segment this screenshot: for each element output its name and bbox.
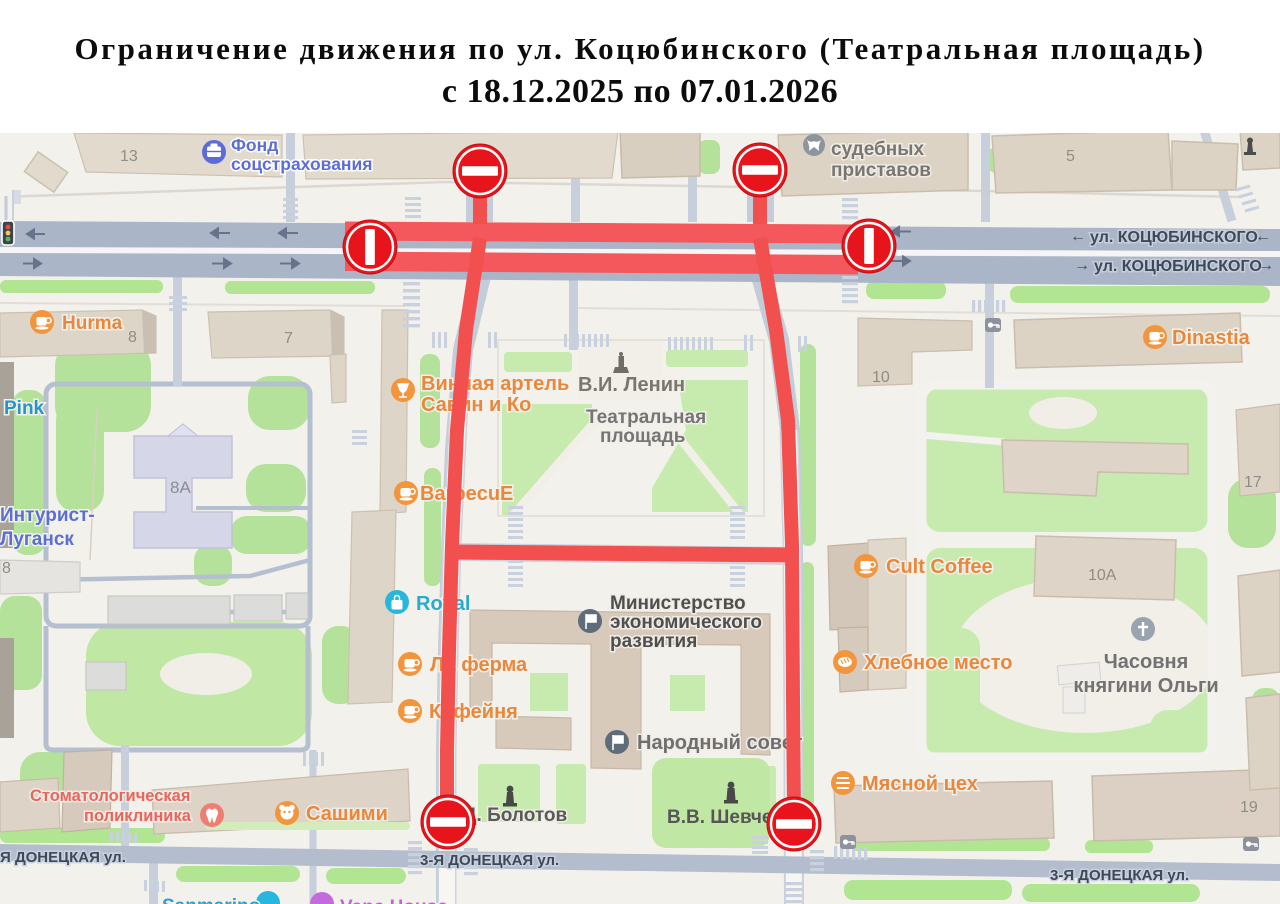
- svg-text:←: ←: [1070, 228, 1086, 245]
- svg-text:Стоматологическая: Стоматологическая: [30, 787, 190, 805]
- svg-text:BarbecuE: BarbecuE: [420, 483, 513, 505]
- svg-text:13: 13: [120, 148, 138, 165]
- svg-text:Vape House: Vape House: [340, 897, 448, 904]
- svg-text:Часовня: Часовня: [1104, 651, 1189, 673]
- svg-text:10А: 10А: [1088, 567, 1117, 584]
- svg-text:Pink: Pink: [4, 398, 45, 419]
- svg-text:Мясной цех: Мясной цех: [862, 773, 978, 795]
- svg-text:Sanmarino: Sanmarino: [162, 896, 260, 904]
- svg-text:→: →: [1258, 257, 1274, 274]
- svg-text:Народный совет: Народный совет: [637, 732, 803, 754]
- svg-text:Я ДОНЕЦКАЯ ул.: Я ДОНЕЦКАЯ ул.: [0, 849, 126, 866]
- svg-text:Винная артель: Винная артель: [421, 373, 569, 395]
- svg-text:ул. КОЦЮБИНСКОГО: ул. КОЦЮБИНСКОГО: [1090, 229, 1258, 246]
- svg-text:В.И. Ленин: В.И. Ленин: [578, 374, 685, 396]
- svg-text:площадь: площадь: [600, 426, 685, 447]
- svg-text:Театральная: Театральная: [586, 407, 706, 428]
- svg-text:Д. Болотов: Д. Болотов: [463, 805, 567, 826]
- svg-text:5: 5: [1066, 148, 1075, 165]
- svg-text:17: 17: [1244, 474, 1262, 491]
- svg-text:Hurma: Hurma: [62, 313, 123, 334]
- svg-text:8: 8: [2, 560, 11, 577]
- svg-text:экономического: экономического: [610, 612, 762, 633]
- svg-text:19: 19: [1240, 799, 1258, 816]
- svg-text:3-Я ДОНЕЦКАЯ ул.: 3-Я ДОНЕЦКАЯ ул.: [1050, 867, 1189, 884]
- svg-text:Министерство: Министерство: [610, 593, 746, 614]
- svg-text:Cult Coffee: Cult Coffee: [886, 556, 993, 578]
- svg-text:8А: 8А: [170, 478, 191, 497]
- svg-text:Хлебное место: Хлебное место: [864, 652, 1013, 674]
- svg-text:ул. КОЦЮБИНСКОГО: ул. КОЦЮБИНСКОГО: [1094, 258, 1262, 275]
- svg-text:Луганск: Луганск: [0, 529, 74, 550]
- svg-text:10: 10: [872, 369, 890, 386]
- svg-text:→: →: [1074, 257, 1090, 274]
- svg-text:приставов: приставов: [831, 160, 931, 181]
- svg-text:Интурист-: Интурист-: [0, 505, 95, 526]
- svg-text:княгини Ольги: княгини Ольги: [1073, 675, 1218, 697]
- svg-text:соцстрахования: соцстрахования: [231, 154, 372, 174]
- svg-text:Dinastia: Dinastia: [1172, 327, 1251, 349]
- svg-text:Савин и Ко: Савин и Ко: [421, 394, 531, 416]
- svg-text:развития: развития: [610, 631, 697, 652]
- svg-text:3-Я ДОНЕЦКАЯ ул.: 3-Я ДОНЕЦКАЯ ул.: [420, 852, 559, 869]
- svg-text:поликлиника: поликлиника: [84, 807, 192, 825]
- svg-text:←: ←: [1255, 228, 1271, 245]
- svg-text:8: 8: [128, 329, 137, 346]
- svg-text:судебных: судебных: [831, 139, 924, 160]
- svg-text:Сашими: Сашими: [306, 803, 388, 825]
- svg-text:7: 7: [284, 330, 293, 347]
- svg-text:Фонд: Фонд: [231, 135, 278, 155]
